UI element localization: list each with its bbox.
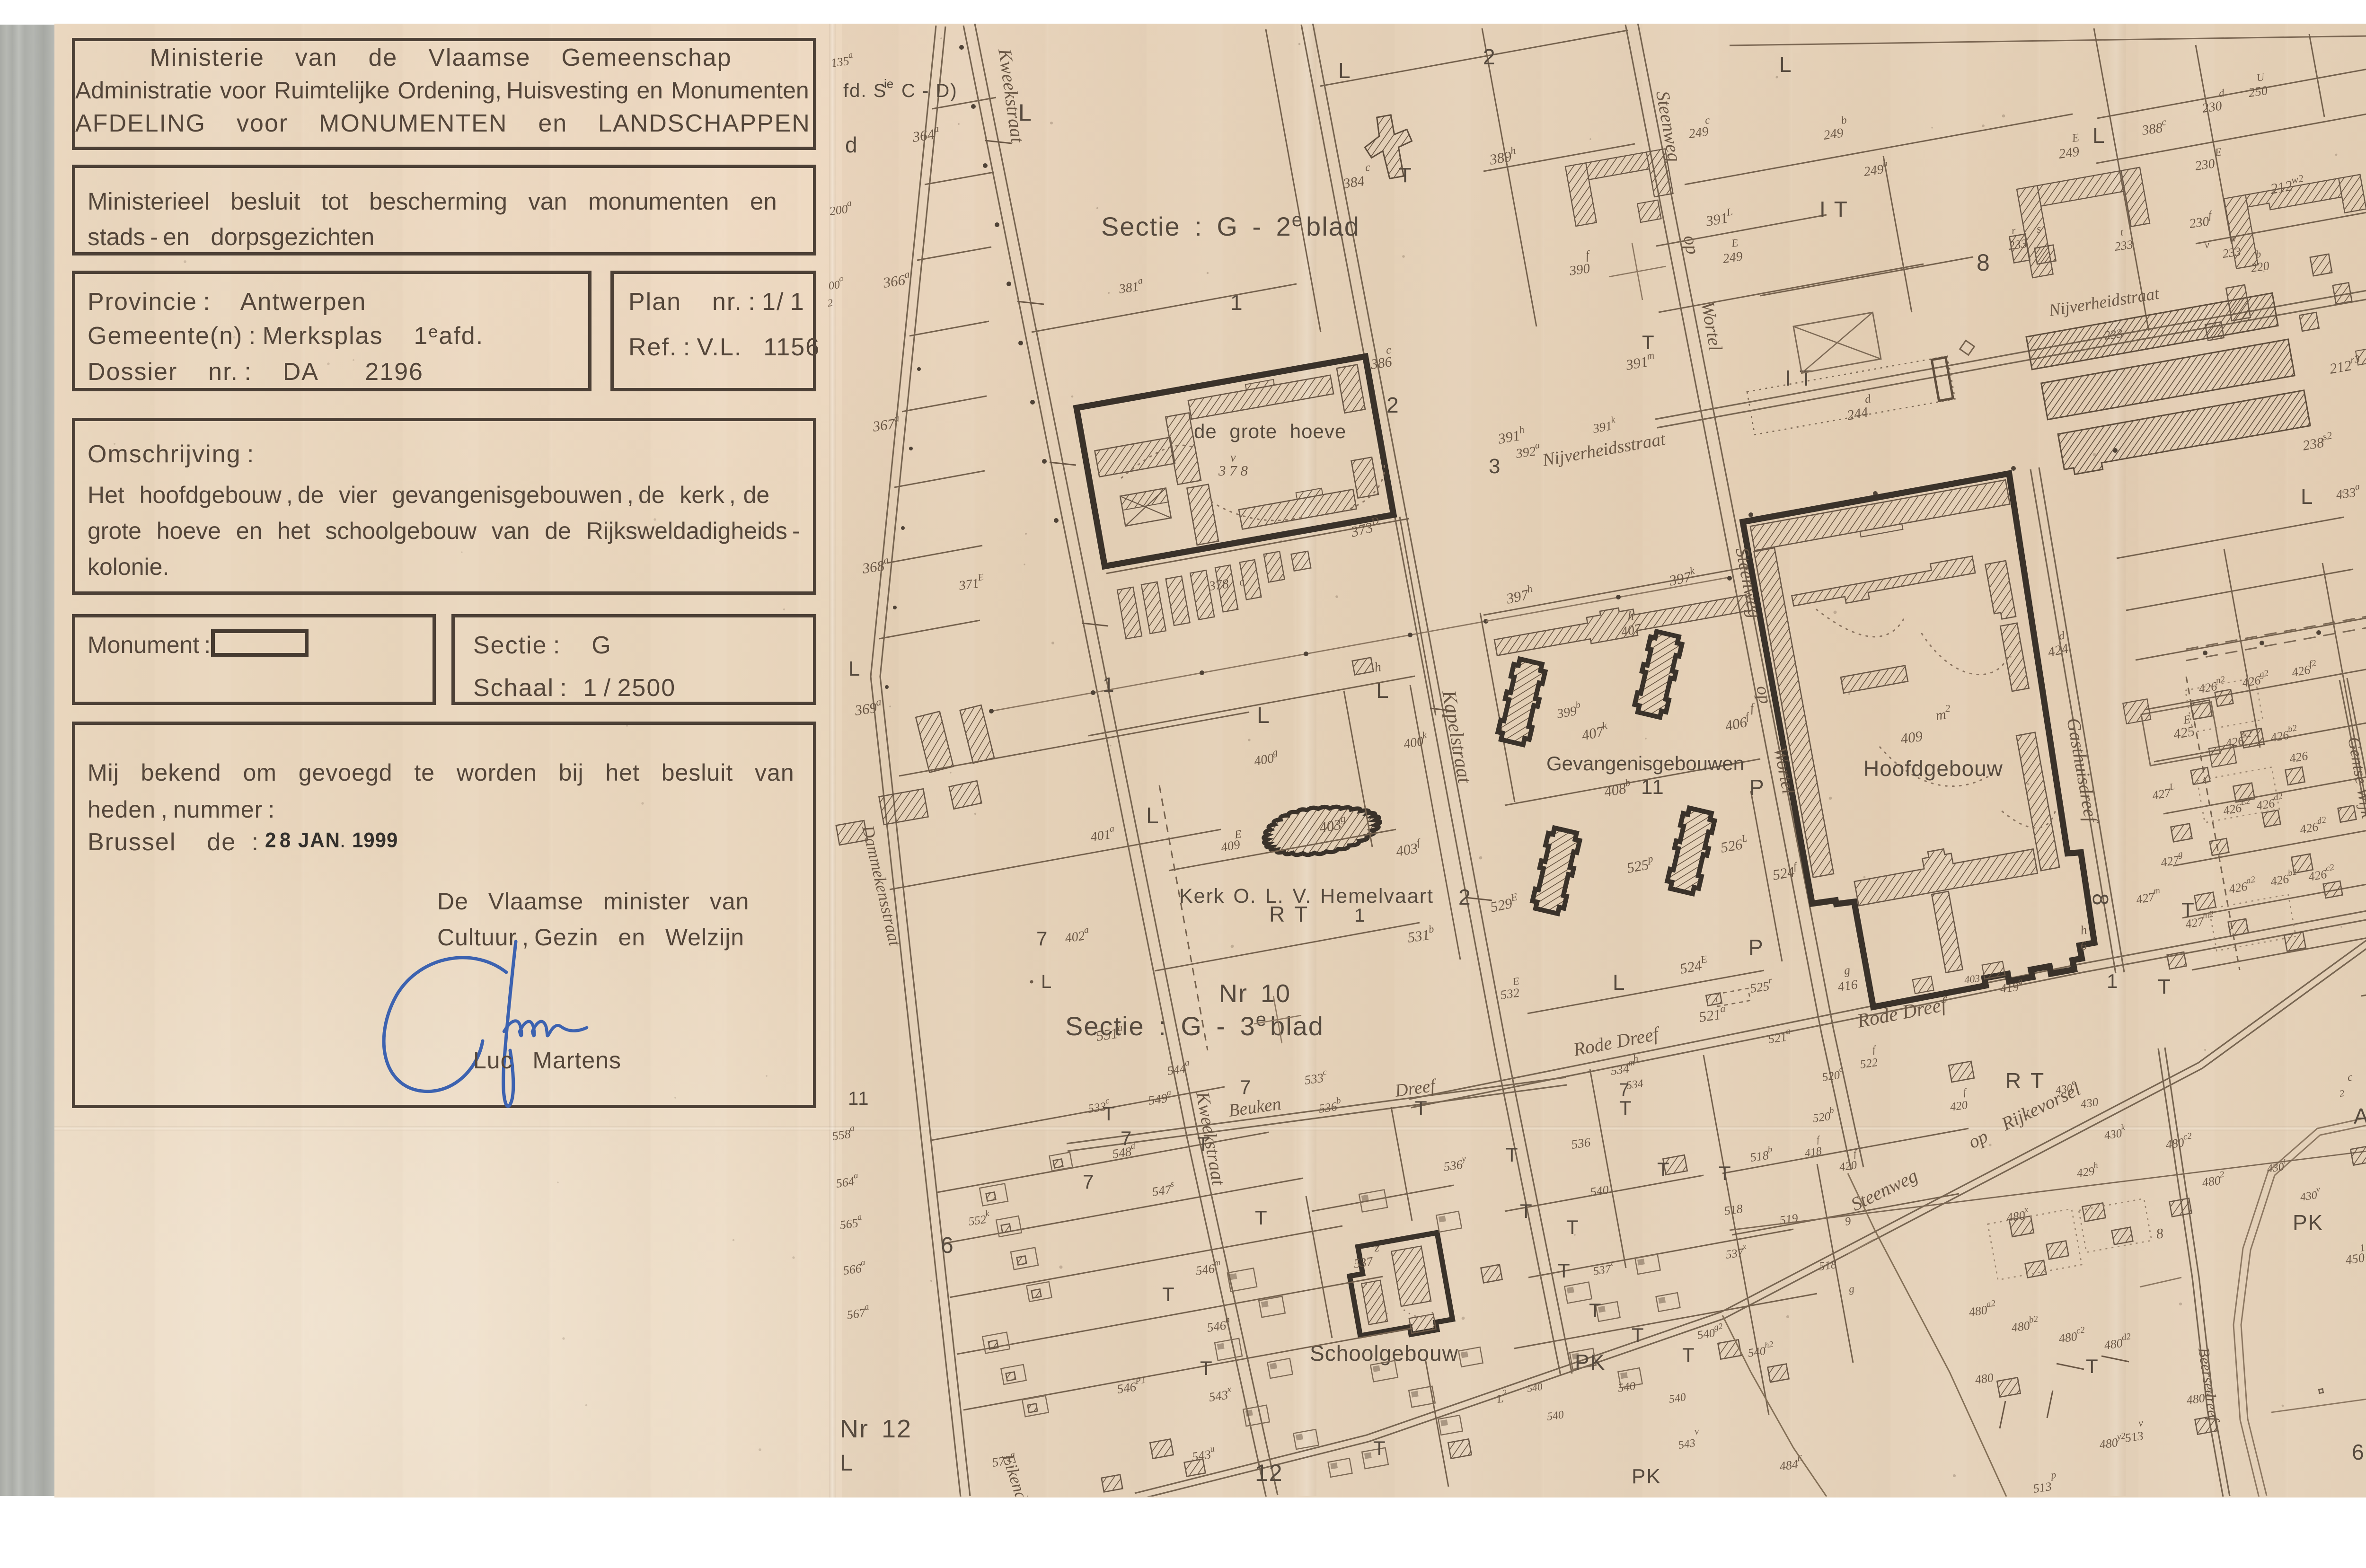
svg-text:2: 2 [1386, 393, 1400, 417]
svg-text:2: 2 [1458, 885, 1472, 909]
svg-text:c: c [1704, 114, 1711, 126]
svg-text:r: r [2011, 224, 2016, 237]
svg-text:220: 220 [2250, 259, 2270, 275]
svg-text:Nijverheidsstraat: Nijverheidsstraat [1540, 429, 1668, 470]
svg-text:E: E [1730, 237, 1739, 249]
svg-text:T: T [1682, 1344, 1695, 1366]
svg-text:P: P [1749, 775, 1765, 800]
svg-text:391L: 391L [1704, 205, 1735, 229]
svg-text:Nijverheidstraat: Nijverheidstraat [2047, 283, 2161, 320]
svg-text:519: 519 [1779, 1211, 1799, 1227]
svg-text:426b2: 426b2 [2269, 723, 2299, 745]
svg-text:m2: m2 [1934, 702, 1952, 723]
svg-text:z: z [1374, 1242, 1379, 1254]
svg-text:PK: PK [1575, 1350, 1606, 1374]
svg-text:3: 3 [1489, 455, 1501, 478]
svg-text:426g2: 426g2 [2241, 668, 2271, 690]
svg-text:PK: PK [2293, 1210, 2323, 1235]
svg-text:378: 378 [1208, 576, 1230, 594]
svg-text:518: 518 [1818, 1258, 1837, 1273]
svg-text:T: T [1103, 1102, 1116, 1125]
svg-text:T: T [1520, 1200, 1533, 1222]
svg-text:I T: I T [1785, 366, 1814, 390]
svg-text:c: c [2347, 1071, 2354, 1084]
svg-text:403: 403 [1964, 972, 1980, 986]
svg-text:T: T [1197, 1133, 1210, 1155]
svg-text:P: P [1748, 935, 1764, 960]
svg-text:406f: 406f [1723, 710, 1753, 734]
svg-text:T: T [1255, 1207, 1268, 1229]
svg-text:525r: 525r [1749, 976, 1774, 995]
svg-text:T: T [1415, 1097, 1428, 1119]
svg-text:E: E [2071, 132, 2080, 145]
svg-text:368a: 368a [860, 554, 891, 577]
svg-text:Nr 10: Nr 10 [1219, 979, 1291, 1008]
svg-text:480a2: 480a2 [1968, 1298, 1997, 1319]
svg-text:Kweekstraat: Kweekstraat [994, 47, 1029, 144]
svg-text:402a: 402a [1064, 925, 1091, 946]
svg-text:480b2: 480b2 [2010, 1314, 2040, 1335]
svg-text:409: 409 [1899, 728, 1924, 747]
svg-text:249b: 249b [1863, 158, 1889, 179]
svg-text:546P1: 546P1 [1116, 1375, 1147, 1396]
svg-text:518b: 518b [1749, 1145, 1774, 1164]
svg-text:T: T [1657, 1158, 1670, 1180]
svg-text:537z: 537z [1592, 1258, 1615, 1278]
svg-text:9: 9 [1844, 1215, 1852, 1228]
svg-text:532: 532 [1500, 986, 1520, 1002]
svg-text:t: t [2119, 226, 2124, 238]
svg-text:390: 390 [1568, 261, 1591, 279]
svg-text:534m: 534m [1609, 1057, 1636, 1078]
svg-text:7: 7 [1619, 1080, 1630, 1100]
svg-text:h: h [1632, 1052, 1639, 1065]
svg-text:T: T [1200, 1357, 1213, 1379]
svg-text:Wortel: Wortel [1697, 300, 1727, 352]
svg-text:6: 6 [2080, 938, 2088, 953]
svg-text:480c2: 480c2 [2057, 1325, 2087, 1346]
svg-text:T: T [1619, 1097, 1633, 1119]
svg-text:529E: 529E [1488, 890, 1520, 916]
svg-text:c: c [1385, 344, 1392, 357]
svg-text:T: T [1373, 1437, 1386, 1459]
svg-text:367a: 367a [871, 412, 901, 435]
svg-text:427g: 427g [2159, 849, 2185, 870]
svg-text:de grote hoeve: de grote hoeve [1194, 420, 1346, 442]
svg-text:11: 11 [1641, 775, 1665, 799]
svg-text:537x: 537x [1724, 1242, 1748, 1261]
svg-text:249: 249 [2058, 144, 2081, 162]
svg-text:384: 384 [1342, 173, 1365, 192]
svg-text:540: 540 [1526, 1381, 1543, 1394]
svg-text:L: L [840, 1451, 854, 1476]
svg-text:v: v [2204, 238, 2210, 251]
svg-text:3 7 8: 3 7 8 [1218, 462, 1248, 479]
svg-text:h: h [2080, 923, 2088, 937]
svg-text:230: 230 [2201, 98, 2223, 116]
svg-text:d: d [2058, 629, 2066, 643]
svg-text:b: b [2255, 248, 2261, 260]
svg-text:543u: 543u [1191, 1444, 1217, 1464]
svg-text:416: 416 [1837, 977, 1859, 995]
svg-text:391h: 391h [1496, 423, 1527, 448]
svg-text:427m: 427m [2135, 885, 2162, 907]
svg-text:409: 409 [1220, 837, 1242, 854]
svg-text:426f2: 426f2 [2290, 658, 2319, 679]
svg-text:T: T [1632, 1324, 1645, 1346]
svg-text:Beersedreef: Beersedreef [2195, 1347, 2222, 1424]
svg-text:1: 1 [1103, 673, 1115, 696]
svg-text:420: 420 [1838, 1159, 1858, 1174]
svg-text:427L: 427L [2151, 782, 2177, 802]
svg-text:Eikendreef: Eikendreef [998, 1451, 1040, 1529]
svg-text:7: 7 [1121, 1127, 1132, 1149]
svg-text:549a: 549a [1147, 1087, 1173, 1108]
svg-text:E: E [2214, 146, 2222, 159]
svg-text:233: 233 [2114, 238, 2134, 254]
svg-text:T: T [1162, 1283, 1175, 1305]
svg-text:L: L [1338, 58, 1351, 83]
svg-text:233: 233 [2222, 245, 2242, 261]
svg-text:567a: 567a [846, 1302, 871, 1322]
svg-text:540: 540 [1546, 1409, 1564, 1423]
svg-text:524f: 524f [1771, 860, 1800, 883]
svg-text:d: d [1864, 392, 1872, 406]
svg-text:543: 543 [1677, 1437, 1696, 1452]
svg-text:op: op [1752, 684, 1775, 705]
svg-text:Rode Dreef: Rode Dreef [1571, 1022, 1662, 1060]
svg-text:520b: 520b [1811, 1105, 1836, 1125]
svg-text:513: 513 [2124, 1429, 2145, 1445]
svg-text:U: U [2256, 71, 2266, 84]
svg-text:426b2: 426b2 [2269, 867, 2299, 889]
svg-text:391k: 391k [1591, 415, 1617, 436]
svg-text:T: T [2086, 1355, 2099, 1377]
svg-text:540h2: 540h2 [1747, 1339, 1775, 1360]
svg-text:1: 1 [1354, 905, 1366, 926]
svg-text:533c: 533c [1303, 1067, 1329, 1087]
svg-text:R T: R T [1269, 902, 1308, 926]
svg-text:Gevangenisgebouwen: Gevangenisgebouwen [1546, 752, 1744, 775]
svg-text:521a: 521a [1697, 1002, 1727, 1025]
svg-text:T: T [1642, 331, 1655, 353]
svg-text:6: 6 [941, 1233, 954, 1258]
svg-text:536: 536 [1571, 1135, 1592, 1152]
svg-text:540g2: 540g2 [1696, 1321, 1724, 1342]
svg-text:381a: 381a [1117, 275, 1145, 297]
svg-text:I T: I T [1819, 197, 1848, 221]
svg-text:430t: 430t [2266, 1156, 2287, 1175]
svg-text:T: T [1566, 1216, 1580, 1238]
svg-text:11: 11 [848, 1088, 870, 1109]
svg-text:480c2: 480c2 [2164, 1131, 2194, 1152]
svg-text:429h: 429h [2075, 1160, 2100, 1180]
svg-text:386: 386 [1369, 354, 1393, 372]
svg-text:513: 513 [2032, 1480, 2053, 1496]
svg-text:f: f [1585, 248, 1592, 262]
svg-text:399b: 399b [1555, 699, 1583, 722]
svg-text:Gasthuisdreef: Gasthuisdreef [2063, 716, 2102, 826]
svg-text:fd. S: fd. S [843, 80, 887, 101]
svg-text:L: L [1041, 971, 1052, 992]
svg-text:366a: 366a [881, 268, 911, 291]
svg-text:L: L [2301, 484, 2314, 509]
svg-text:540: 540 [1617, 1380, 1636, 1395]
svg-text:L: L [1613, 970, 1626, 995]
svg-text:430v: 430v [2299, 1184, 2322, 1204]
svg-text:8: 8 [2155, 1225, 2164, 1242]
svg-text:g: g [1843, 963, 1851, 978]
svg-text:522: 522 [1859, 1056, 1879, 1071]
svg-text:418: 418 [1804, 1145, 1822, 1160]
svg-text:552k: 552k [967, 1208, 991, 1228]
svg-text:558a: 558a [831, 1123, 856, 1143]
svg-text:8: 8 [1977, 249, 1991, 276]
svg-text:L: L [1146, 803, 1160, 828]
svg-text:403f: 403f [1394, 836, 1423, 860]
svg-text:407k: 407k [1580, 719, 1610, 744]
svg-text:7: 7 [1240, 1076, 1252, 1098]
svg-text:op: op [1679, 234, 1704, 256]
svg-text:12: 12 [1255, 1460, 1283, 1486]
svg-text:1: 1 [2359, 1242, 2366, 1254]
svg-text:424: 424 [2047, 641, 2070, 660]
svg-text:397h: 397h [1504, 582, 1535, 607]
svg-text:6: 6 [2352, 1440, 2365, 1464]
svg-text:C - D): C - D) [901, 80, 958, 101]
svg-text:249: 249 [1823, 125, 1845, 143]
svg-text:Sectie : G - 2eblad: Sectie : G - 2eblad [1101, 210, 1360, 241]
svg-text:480: 480 [1974, 1371, 1995, 1387]
svg-text:d: d [2218, 87, 2225, 99]
svg-text:L2: L2 [1495, 1388, 1509, 1406]
svg-text:389h: 389h [1487, 144, 1518, 168]
svg-text:op: op [1965, 1125, 1991, 1153]
svg-text:564a: 564a [835, 1171, 860, 1190]
svg-text:7: 7 [1083, 1171, 1095, 1193]
svg-text:2: 2 [2339, 1088, 2345, 1099]
svg-text:c: c [1364, 161, 1371, 174]
svg-text:AE: AE [2354, 1104, 2366, 1128]
svg-text:388c: 388c [2140, 116, 2168, 138]
svg-text:230: 230 [2194, 156, 2216, 174]
svg-text:1: 1 [2107, 970, 2119, 992]
svg-text:546n: 546n [1206, 1314, 1232, 1335]
svg-text:Hoofdgebouw: Hoofdgebouw [1863, 756, 2003, 781]
svg-text:540: 540 [1668, 1391, 1686, 1406]
svg-text:Nr 12: Nr 12 [840, 1415, 912, 1443]
svg-text:E: E [1511, 975, 1520, 987]
svg-text:238s2: 238s2 [2301, 429, 2334, 454]
svg-text:400g: 400g [1253, 747, 1280, 768]
svg-text:536b: 536b [1317, 1096, 1342, 1116]
svg-text:135a: 135a [830, 50, 855, 70]
svg-text:531b: 531b [1406, 923, 1436, 946]
svg-text:401a: 401a [1089, 823, 1116, 845]
svg-text:543x: 543x [1208, 1384, 1233, 1404]
svg-text:d: d [845, 132, 858, 157]
svg-text:521a: 521a [1767, 1026, 1792, 1046]
svg-text:7: 7 [1036, 927, 1048, 950]
svg-text:408b: 408b [1602, 776, 1633, 800]
svg-text:v: v [2137, 1417, 2144, 1429]
svg-text:420: 420 [1949, 1099, 1969, 1114]
svg-text:525p: 525p [1625, 853, 1655, 876]
svg-text:426: 426 [2288, 749, 2309, 766]
svg-text:h: h [1374, 660, 1382, 675]
svg-text:426a2: 426a2 [2227, 874, 2258, 896]
svg-text:Schoolgebouw: Schoolgebouw [1310, 1341, 1458, 1365]
svg-text:T: T [1589, 1299, 1602, 1321]
svg-text:v: v [1694, 1426, 1700, 1437]
svg-text:2: 2 [827, 297, 833, 309]
svg-text:400k: 400k [1402, 730, 1430, 751]
svg-text:L: L [848, 657, 861, 680]
svg-text:T: T [2181, 899, 2195, 922]
svg-text:f: f [2207, 209, 2214, 221]
svg-text:g: g [1848, 1283, 1855, 1295]
svg-text:4802: 4802 [2201, 1169, 2226, 1189]
svg-text:b: b [1840, 114, 1847, 126]
svg-text:244: 244 [1845, 405, 1869, 423]
svg-text:f: f [1872, 1043, 1877, 1055]
svg-text:480d2: 480d2 [2103, 1331, 2133, 1352]
svg-text:540: 540 [1589, 1183, 1610, 1199]
svg-text:T: T [1506, 1144, 1519, 1166]
svg-text:T: T [2158, 975, 2172, 998]
svg-text:L: L [1779, 52, 1792, 77]
svg-text:00a: 00a [827, 274, 845, 292]
svg-text:230: 230 [2189, 214, 2210, 231]
svg-text:Dreef: Dreef [1393, 1075, 1439, 1101]
svg-text:250: 250 [2248, 83, 2269, 100]
svg-text:249: 249 [1722, 249, 1744, 266]
svg-text:480y2: 480y2 [2098, 1431, 2128, 1452]
svg-text:537: 537 [1353, 1254, 1375, 1271]
svg-text:L: L [1257, 703, 1271, 728]
svg-text:T: T [1558, 1260, 1571, 1282]
svg-text:8: 8 [2088, 893, 2113, 907]
svg-text:f: f [1962, 1086, 1968, 1098]
svg-text:566a: 566a [842, 1258, 867, 1277]
svg-text:526L: 526L [1719, 832, 1749, 856]
svg-text:430k: 430k [2103, 1122, 2127, 1142]
svg-text:249: 249 [1688, 124, 1710, 141]
svg-text:ie: ie [884, 77, 893, 91]
svg-text:430: 430 [2080, 1096, 2099, 1111]
svg-text:484E: 484E [1778, 1453, 1805, 1473]
svg-text:369a: 369a [853, 696, 883, 719]
svg-text:R T: R T [2005, 1068, 2045, 1093]
svg-text:518: 518 [1723, 1202, 1744, 1218]
svg-text:200a: 200a [828, 198, 853, 218]
svg-text:565a: 565a [839, 1212, 864, 1232]
svg-text:433a: 433a [2335, 481, 2362, 502]
svg-text:f: f [1816, 1134, 1821, 1145]
svg-text:2: 2 [1483, 44, 1496, 69]
svg-text:PK: PK [1632, 1465, 1661, 1488]
svg-text:544a: 544a [1166, 1058, 1191, 1078]
svg-text:h: h [1628, 609, 1634, 623]
svg-text:520c: 520c [1821, 1064, 1845, 1084]
svg-text:524E: 524E [1678, 953, 1710, 977]
svg-text:371E: 371E [957, 572, 986, 593]
svg-text:233: 233 [2103, 326, 2124, 343]
svg-text:L: L [2092, 123, 2106, 148]
svg-text:T: T [1719, 1162, 1732, 1184]
svg-text:536y: 536y [1442, 1154, 1468, 1174]
svg-text:426d2: 426d2 [2298, 815, 2329, 837]
svg-text:547s: 547s [1151, 1179, 1175, 1199]
